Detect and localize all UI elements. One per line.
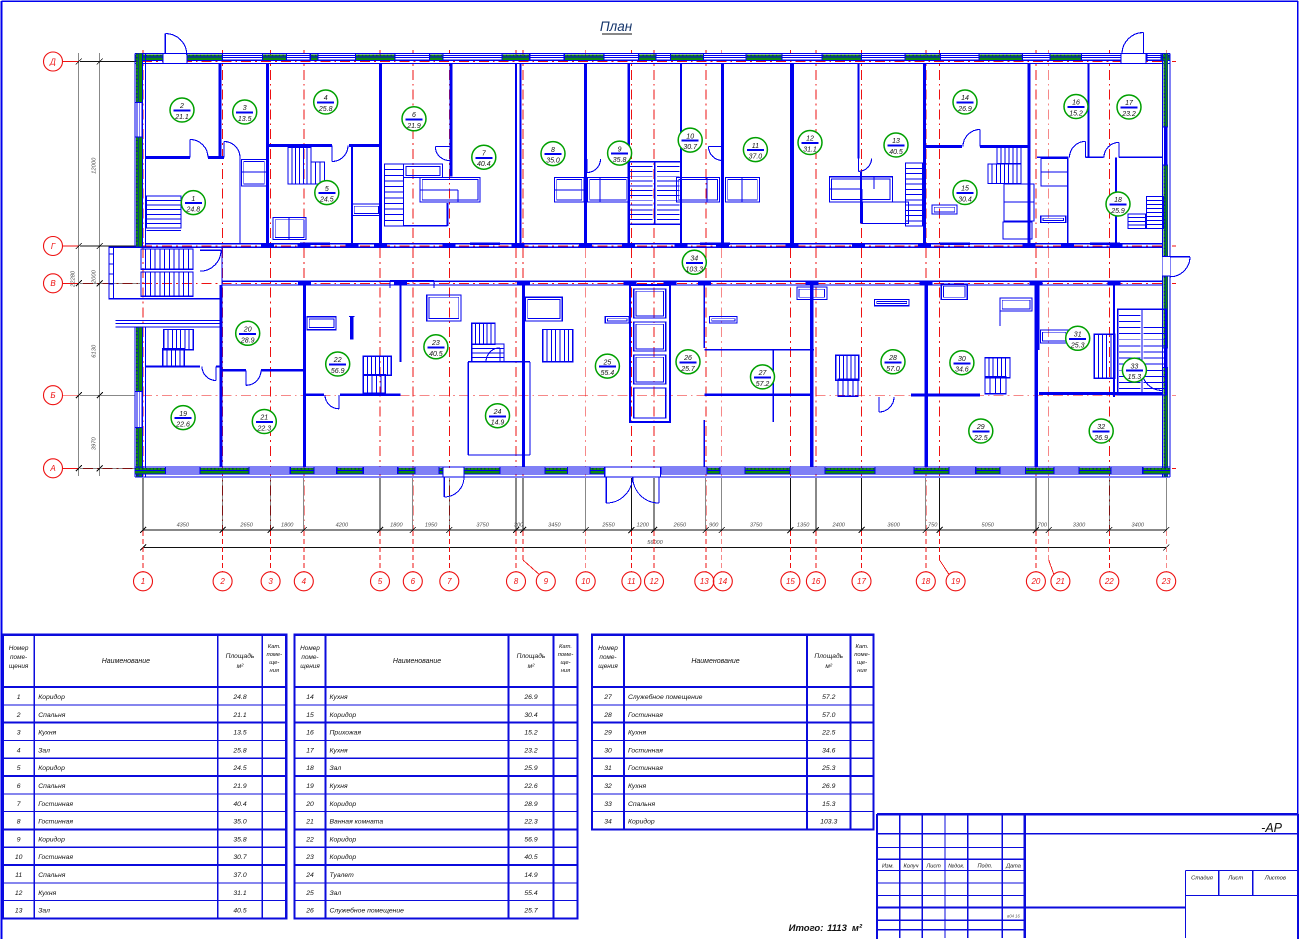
svg-text:25.9: 25.9 (1110, 208, 1125, 215)
svg-text:21: 21 (259, 415, 268, 422)
svg-text:Кухня: Кухня (628, 783, 646, 790)
svg-text:Кухня: Кухня (330, 694, 348, 701)
svg-text:№док.: №док. (948, 864, 964, 870)
svg-text:10: 10 (15, 854, 23, 861)
svg-text:Номер: Номер (9, 645, 29, 652)
svg-text:20: 20 (305, 801, 314, 808)
svg-text:А: А (49, 464, 55, 473)
svg-text:3: 3 (243, 105, 247, 112)
svg-text:13: 13 (892, 138, 900, 145)
svg-text:9: 9 (17, 836, 21, 843)
svg-text:12: 12 (650, 577, 659, 586)
svg-text:21.9: 21.9 (406, 123, 421, 130)
svg-text:Служебное помещение: Служебное помещение (330, 907, 405, 915)
svg-text:19: 19 (306, 783, 314, 790)
svg-text:2650: 2650 (239, 523, 253, 529)
svg-text:26.9: 26.9 (1093, 435, 1108, 442)
svg-text:22: 22 (1104, 577, 1114, 586)
svg-text:1: 1 (191, 196, 195, 203)
svg-text:3300: 3300 (1073, 523, 1086, 529)
svg-text:56.9: 56.9 (524, 836, 537, 843)
svg-text:2: 2 (219, 577, 225, 586)
svg-text:17: 17 (306, 747, 314, 754)
svg-text:40.5: 40.5 (429, 351, 443, 358)
svg-text:Прихожая: Прихожая (330, 730, 362, 737)
svg-text:7: 7 (447, 577, 452, 586)
svg-text:57.2: 57.2 (756, 381, 770, 388)
svg-text:31.1: 31.1 (803, 147, 817, 154)
svg-text:25.9: 25.9 (523, 765, 537, 772)
svg-text:24.5: 24.5 (232, 765, 246, 772)
svg-text:35.0: 35.0 (233, 819, 246, 826)
svg-text:Спальня: Спальня (38, 712, 66, 719)
svg-text:2: 2 (179, 103, 184, 110)
svg-text:30.7: 30.7 (233, 854, 246, 861)
svg-text:32: 32 (604, 783, 612, 790)
svg-text:18: 18 (306, 765, 314, 772)
svg-text:Коридор: Коридор (628, 818, 655, 826)
svg-text:поме-: поме- (599, 654, 616, 661)
svg-text:Гостинная: Гостинная (38, 801, 73, 808)
svg-text:13: 13 (15, 908, 23, 915)
svg-text:Листов: Листов (1264, 876, 1286, 882)
svg-text:34: 34 (690, 256, 698, 263)
svg-text:750: 750 (928, 523, 938, 529)
svg-text:5: 5 (325, 186, 329, 193)
svg-text:27: 27 (758, 370, 768, 377)
svg-text:Наименование: Наименование (102, 658, 150, 665)
svg-text:28.9: 28.9 (240, 337, 255, 344)
svg-text:56000: 56000 (647, 540, 663, 546)
svg-text:25.7: 25.7 (680, 366, 696, 373)
svg-text:м²: м² (852, 923, 863, 934)
svg-text:щения: щения (598, 663, 618, 670)
svg-text:22280: 22280 (71, 270, 77, 288)
svg-text:Коридор: Коридор (330, 711, 357, 719)
svg-text:30.4: 30.4 (524, 712, 537, 719)
svg-text:щения: щения (300, 663, 320, 670)
svg-text:Коридор: Коридор (330, 835, 357, 843)
svg-text:В: В (50, 279, 56, 288)
svg-text:13.5: 13.5 (233, 730, 246, 737)
svg-text:700: 700 (1038, 523, 1048, 529)
svg-text:ния: ния (270, 668, 280, 674)
svg-text:10: 10 (686, 133, 694, 140)
svg-text:22: 22 (333, 357, 342, 364)
svg-text:ще-: ще- (560, 660, 570, 666)
svg-text:Итого:: Итого: (789, 923, 824, 934)
svg-text:15: 15 (786, 577, 795, 586)
svg-text:15.3: 15.3 (822, 801, 835, 808)
svg-text:2400: 2400 (831, 523, 845, 529)
svg-text:21.9: 21.9 (232, 783, 246, 790)
svg-text:17: 17 (857, 577, 866, 586)
svg-text:1800: 1800 (390, 523, 403, 529)
svg-text:20: 20 (243, 327, 252, 334)
svg-text:24: 24 (305, 872, 314, 879)
svg-text:22.3: 22.3 (256, 426, 271, 433)
svg-text:3: 3 (268, 577, 273, 586)
svg-text:3970: 3970 (92, 437, 98, 451)
svg-text:22: 22 (305, 836, 314, 843)
svg-text:3400: 3400 (1132, 523, 1145, 529)
svg-text:поме-: поме- (267, 652, 283, 658)
svg-text:12: 12 (806, 136, 814, 143)
svg-text:40.4: 40.4 (477, 161, 491, 168)
svg-text:22.3: 22.3 (523, 819, 537, 826)
svg-text:Коридор: Коридор (38, 693, 65, 701)
svg-text:5: 5 (17, 765, 21, 772)
svg-text:29: 29 (603, 730, 612, 737)
svg-text:13: 13 (700, 577, 709, 586)
svg-text:57.0: 57.0 (822, 712, 835, 719)
svg-text:34: 34 (604, 819, 612, 826)
svg-text:поме-: поме- (301, 654, 318, 661)
svg-text:14: 14 (961, 95, 969, 102)
svg-text:поме-: поме- (10, 654, 27, 661)
svg-text:Спальня: Спальня (38, 872, 66, 879)
svg-text:ще-: ще- (269, 660, 279, 666)
svg-text:29: 29 (976, 424, 985, 431)
svg-text:Б: Б (50, 391, 55, 400)
svg-text:23.2: 23.2 (523, 747, 537, 754)
svg-text:1800: 1800 (281, 523, 294, 529)
svg-text:23.2: 23.2 (1121, 111, 1136, 118)
svg-text:34.6: 34.6 (955, 367, 969, 374)
svg-text:22.5: 22.5 (973, 435, 988, 442)
svg-text:5050: 5050 (981, 523, 994, 529)
svg-text:14.9: 14.9 (491, 420, 505, 427)
svg-text:Кухня: Кухня (330, 747, 348, 754)
svg-text:15.3: 15.3 (1128, 374, 1142, 381)
svg-text:30: 30 (604, 747, 612, 754)
svg-text:Стадия: Стадия (1191, 876, 1213, 882)
svg-text:11: 11 (15, 872, 22, 879)
svg-text:20: 20 (1030, 577, 1040, 586)
svg-text:1113: 1113 (827, 923, 847, 934)
svg-text:Туалет: Туалет (330, 872, 355, 879)
svg-text:15.2: 15.2 (1069, 111, 1083, 118)
svg-text:25: 25 (603, 359, 612, 366)
svg-text:11: 11 (627, 577, 635, 586)
svg-text:Спальня: Спальня (628, 801, 656, 808)
svg-text:16: 16 (306, 730, 314, 737)
svg-text:Кухня: Кухня (628, 730, 646, 737)
svg-text:103.3: 103.3 (686, 266, 704, 273)
svg-text:3750: 3750 (476, 523, 489, 529)
svg-text:23: 23 (1161, 577, 1171, 586)
svg-text:14.9: 14.9 (524, 872, 537, 879)
svg-text:35.8: 35.8 (613, 157, 627, 164)
svg-text:26.9: 26.9 (523, 694, 537, 701)
svg-text:26: 26 (305, 908, 314, 915)
svg-text:в04 16: в04 16 (1007, 914, 1020, 919)
svg-text:900: 900 (709, 523, 719, 529)
svg-text:30: 30 (958, 356, 966, 363)
svg-text:Колуч: Колуч (903, 864, 918, 870)
svg-text:3: 3 (17, 730, 21, 737)
svg-text:4: 4 (17, 747, 21, 754)
svg-text:1350: 1350 (797, 523, 810, 529)
svg-text:Дата: Дата (1005, 864, 1021, 870)
svg-text:6: 6 (411, 577, 416, 586)
svg-text:55.4: 55.4 (601, 370, 615, 377)
svg-text:19: 19 (179, 411, 187, 418)
svg-text:37.0: 37.0 (233, 872, 246, 879)
svg-text:9: 9 (618, 146, 622, 153)
svg-text:300: 300 (514, 523, 524, 529)
svg-text:м²: м² (237, 663, 245, 670)
svg-text:Коридор: Коридор (38, 764, 65, 772)
svg-text:м²: м² (528, 663, 536, 670)
svg-text:26.9: 26.9 (821, 783, 835, 790)
svg-text:15: 15 (961, 186, 969, 193)
svg-text:21: 21 (1055, 577, 1065, 586)
svg-text:8: 8 (551, 147, 555, 154)
svg-text:Кухня: Кухня (330, 783, 348, 790)
svg-text:30.4: 30.4 (958, 197, 972, 204)
svg-text:Площадь: Площадь (814, 652, 843, 660)
svg-text:32: 32 (1097, 424, 1105, 431)
svg-text:5: 5 (378, 577, 383, 586)
svg-text:57.2: 57.2 (822, 694, 835, 701)
svg-text:28: 28 (888, 355, 897, 362)
svg-text:Зал: Зал (38, 908, 50, 915)
svg-text:18: 18 (921, 577, 930, 586)
svg-text:22.5: 22.5 (821, 730, 835, 737)
svg-text:ще-: ще- (857, 660, 867, 666)
svg-text:16: 16 (811, 577, 820, 586)
svg-text:17: 17 (1125, 100, 1134, 107)
svg-text:30.7: 30.7 (683, 144, 698, 151)
svg-text:Наименование: Наименование (393, 658, 441, 665)
svg-text:33: 33 (604, 801, 612, 808)
svg-text:-АР: -АР (1261, 821, 1283, 835)
svg-text:15: 15 (306, 712, 314, 719)
svg-text:23: 23 (431, 340, 440, 347)
svg-text:Гостинная: Гостинная (628, 747, 663, 754)
svg-text:14: 14 (718, 577, 727, 586)
svg-text:м²: м² (825, 663, 833, 670)
svg-text:11: 11 (752, 143, 759, 150)
svg-text:Гостинная: Гостинная (38, 819, 73, 826)
svg-text:Подп.: Подп. (977, 864, 992, 870)
svg-text:23: 23 (305, 854, 314, 861)
svg-text:6: 6 (17, 783, 21, 790)
svg-text:1: 1 (17, 694, 21, 701)
svg-text:Зал: Зал (330, 890, 342, 897)
svg-text:13.5: 13.5 (238, 116, 252, 123)
svg-text:22.6: 22.6 (175, 422, 190, 429)
svg-text:План: План (600, 19, 633, 34)
svg-text:28.9: 28.9 (523, 801, 537, 808)
svg-text:25.7: 25.7 (523, 908, 537, 915)
svg-text:Лист: Лист (1227, 876, 1243, 882)
svg-text:31: 31 (604, 765, 612, 772)
svg-text:28: 28 (603, 712, 612, 719)
svg-text:31: 31 (1074, 332, 1082, 339)
svg-text:24: 24 (493, 409, 502, 416)
svg-text:ния: ния (561, 668, 571, 674)
svg-text:19: 19 (951, 577, 960, 586)
svg-text:40.4: 40.4 (233, 801, 246, 808)
svg-text:10: 10 (581, 577, 590, 586)
svg-text:25.8: 25.8 (318, 106, 333, 113)
svg-text:25.8: 25.8 (232, 747, 246, 754)
svg-text:щения: щения (9, 663, 29, 670)
svg-text:25.3: 25.3 (1070, 342, 1085, 349)
svg-text:4: 4 (324, 95, 328, 102)
svg-text:40.5: 40.5 (524, 854, 537, 861)
svg-text:7: 7 (17, 801, 21, 808)
svg-text:Кат.: Кат. (268, 644, 281, 650)
svg-text:Наименование: Наименование (691, 658, 739, 665)
svg-text:24.8: 24.8 (185, 207, 200, 214)
svg-text:25: 25 (305, 890, 314, 897)
svg-text:Номер: Номер (300, 645, 320, 652)
svg-text:Зал: Зал (330, 765, 342, 772)
svg-text:15.2: 15.2 (524, 730, 537, 737)
svg-text:12: 12 (15, 890, 23, 897)
svg-text:6: 6 (412, 112, 416, 119)
svg-text:26.9: 26.9 (957, 106, 972, 113)
svg-text:ния: ния (857, 668, 867, 674)
svg-text:18: 18 (1114, 197, 1122, 204)
svg-text:Площадь: Площадь (517, 652, 546, 660)
svg-text:34.6: 34.6 (822, 747, 835, 754)
svg-text:4350: 4350 (177, 523, 190, 529)
svg-text:Коридор: Коридор (38, 835, 65, 843)
svg-text:3600: 3600 (887, 523, 900, 529)
svg-text:Гостинная: Гостинная (628, 765, 663, 772)
svg-text:21.1: 21.1 (232, 712, 246, 719)
svg-text:55.4: 55.4 (524, 890, 537, 897)
svg-text:Коридор: Коридор (330, 853, 357, 861)
svg-text:2550: 2550 (601, 523, 615, 529)
svg-text:Гостинная: Гостинная (38, 854, 73, 861)
svg-text:Коридор: Коридор (330, 800, 357, 808)
svg-text:3750: 3750 (750, 523, 763, 529)
svg-text:9: 9 (544, 577, 549, 586)
svg-text:103.3: 103.3 (820, 819, 837, 826)
svg-text:поме-: поме- (854, 652, 870, 658)
svg-text:25.3: 25.3 (821, 765, 835, 772)
svg-text:57.0: 57.0 (886, 366, 900, 373)
svg-text:37.0: 37.0 (749, 154, 763, 161)
svg-text:33: 33 (1131, 363, 1139, 370)
svg-text:Кат.: Кат. (855, 644, 868, 650)
svg-text:21: 21 (305, 819, 314, 826)
svg-text:Кухня: Кухня (38, 890, 56, 897)
svg-text:Кухня: Кухня (38, 730, 56, 737)
svg-text:Номер: Номер (598, 645, 618, 652)
svg-text:Гостинная: Гостинная (628, 712, 663, 719)
svg-text:8: 8 (17, 819, 21, 826)
svg-text:56.9: 56.9 (331, 368, 345, 375)
svg-text:Служебное помещение: Служебное помещение (628, 693, 703, 701)
svg-text:40.5: 40.5 (889, 149, 903, 156)
svg-text:4200: 4200 (336, 523, 349, 529)
svg-text:12000: 12000 (92, 157, 98, 174)
svg-text:Д: Д (49, 57, 56, 66)
svg-text:Изм.: Изм. (882, 864, 894, 870)
svg-text:24.5: 24.5 (319, 197, 334, 204)
svg-text:Кат.: Кат. (559, 644, 572, 650)
svg-text:1200: 1200 (636, 523, 649, 529)
svg-text:Лист: Лист (925, 864, 941, 870)
svg-text:4: 4 (302, 577, 307, 586)
svg-text:1: 1 (141, 577, 145, 586)
svg-text:40.5: 40.5 (233, 908, 246, 915)
svg-text:26: 26 (683, 355, 692, 362)
svg-text:3450: 3450 (548, 523, 561, 529)
svg-text:14: 14 (306, 694, 314, 701)
svg-text:Г: Г (51, 242, 56, 251)
svg-text:16: 16 (1072, 100, 1080, 107)
svg-text:35.0: 35.0 (546, 158, 560, 165)
svg-text:Площадь: Площадь (226, 652, 255, 660)
svg-text:27: 27 (603, 694, 612, 701)
svg-text:31.1: 31.1 (233, 890, 246, 897)
svg-text:2: 2 (16, 712, 21, 719)
svg-text:22.6: 22.6 (523, 783, 537, 790)
svg-text:2000: 2000 (92, 269, 98, 284)
svg-text:21.1: 21.1 (174, 114, 189, 121)
svg-text:8: 8 (514, 577, 519, 586)
svg-text:Ванная комната: Ванная комната (330, 819, 384, 826)
svg-text:Спальня: Спальня (38, 783, 66, 790)
svg-text:Зал: Зал (38, 747, 50, 754)
svg-text:24.8: 24.8 (232, 694, 246, 701)
svg-text:поме-: поме- (558, 652, 574, 658)
svg-text:6130: 6130 (92, 344, 98, 358)
svg-text:35.8: 35.8 (233, 836, 246, 843)
svg-text:1950: 1950 (425, 523, 438, 529)
svg-text:2650: 2650 (673, 523, 687, 529)
